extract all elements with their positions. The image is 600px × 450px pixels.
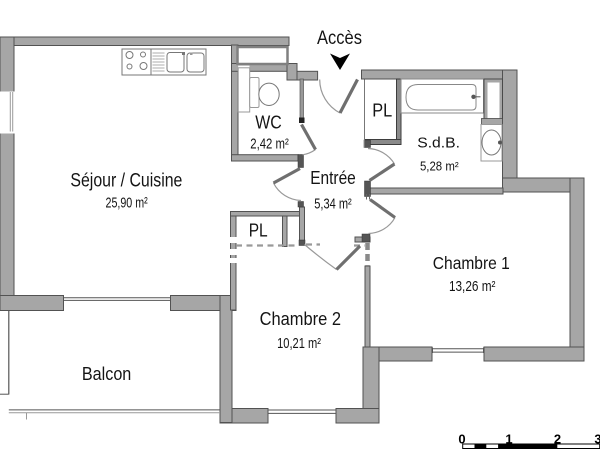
svg-text:5,34 m²: 5,34 m²	[314, 196, 352, 212]
svg-text:WC: WC	[255, 112, 282, 133]
svg-text:2: 2	[554, 431, 561, 446]
svg-text:3: 3	[594, 431, 600, 446]
svg-text:Chambre 2: Chambre 2	[260, 308, 341, 329]
svg-text:Chambre 1: Chambre 1	[433, 253, 510, 273]
svg-text:13,26 m²: 13,26 m²	[449, 279, 496, 295]
svg-text:Entrée: Entrée	[310, 167, 356, 188]
svg-text:5,28 m²: 5,28 m²	[420, 159, 459, 174]
svg-text:2,42 m²: 2,42 m²	[250, 136, 289, 152]
svg-text:PL: PL	[372, 100, 392, 121]
svg-text:Accès: Accès	[317, 27, 362, 49]
svg-text:Séjour / Cuisine: Séjour / Cuisine	[70, 170, 182, 192]
svg-text:S.d.B.: S.d.B.	[417, 135, 460, 151]
svg-text:10,21 m²: 10,21 m²	[277, 336, 321, 352]
svg-text:1: 1	[505, 431, 512, 446]
svg-text:PL: PL	[249, 220, 268, 241]
svg-text:Balcon: Balcon	[82, 363, 131, 384]
svg-text:25,90 m²: 25,90 m²	[106, 194, 148, 211]
svg-text:0: 0	[458, 431, 465, 446]
